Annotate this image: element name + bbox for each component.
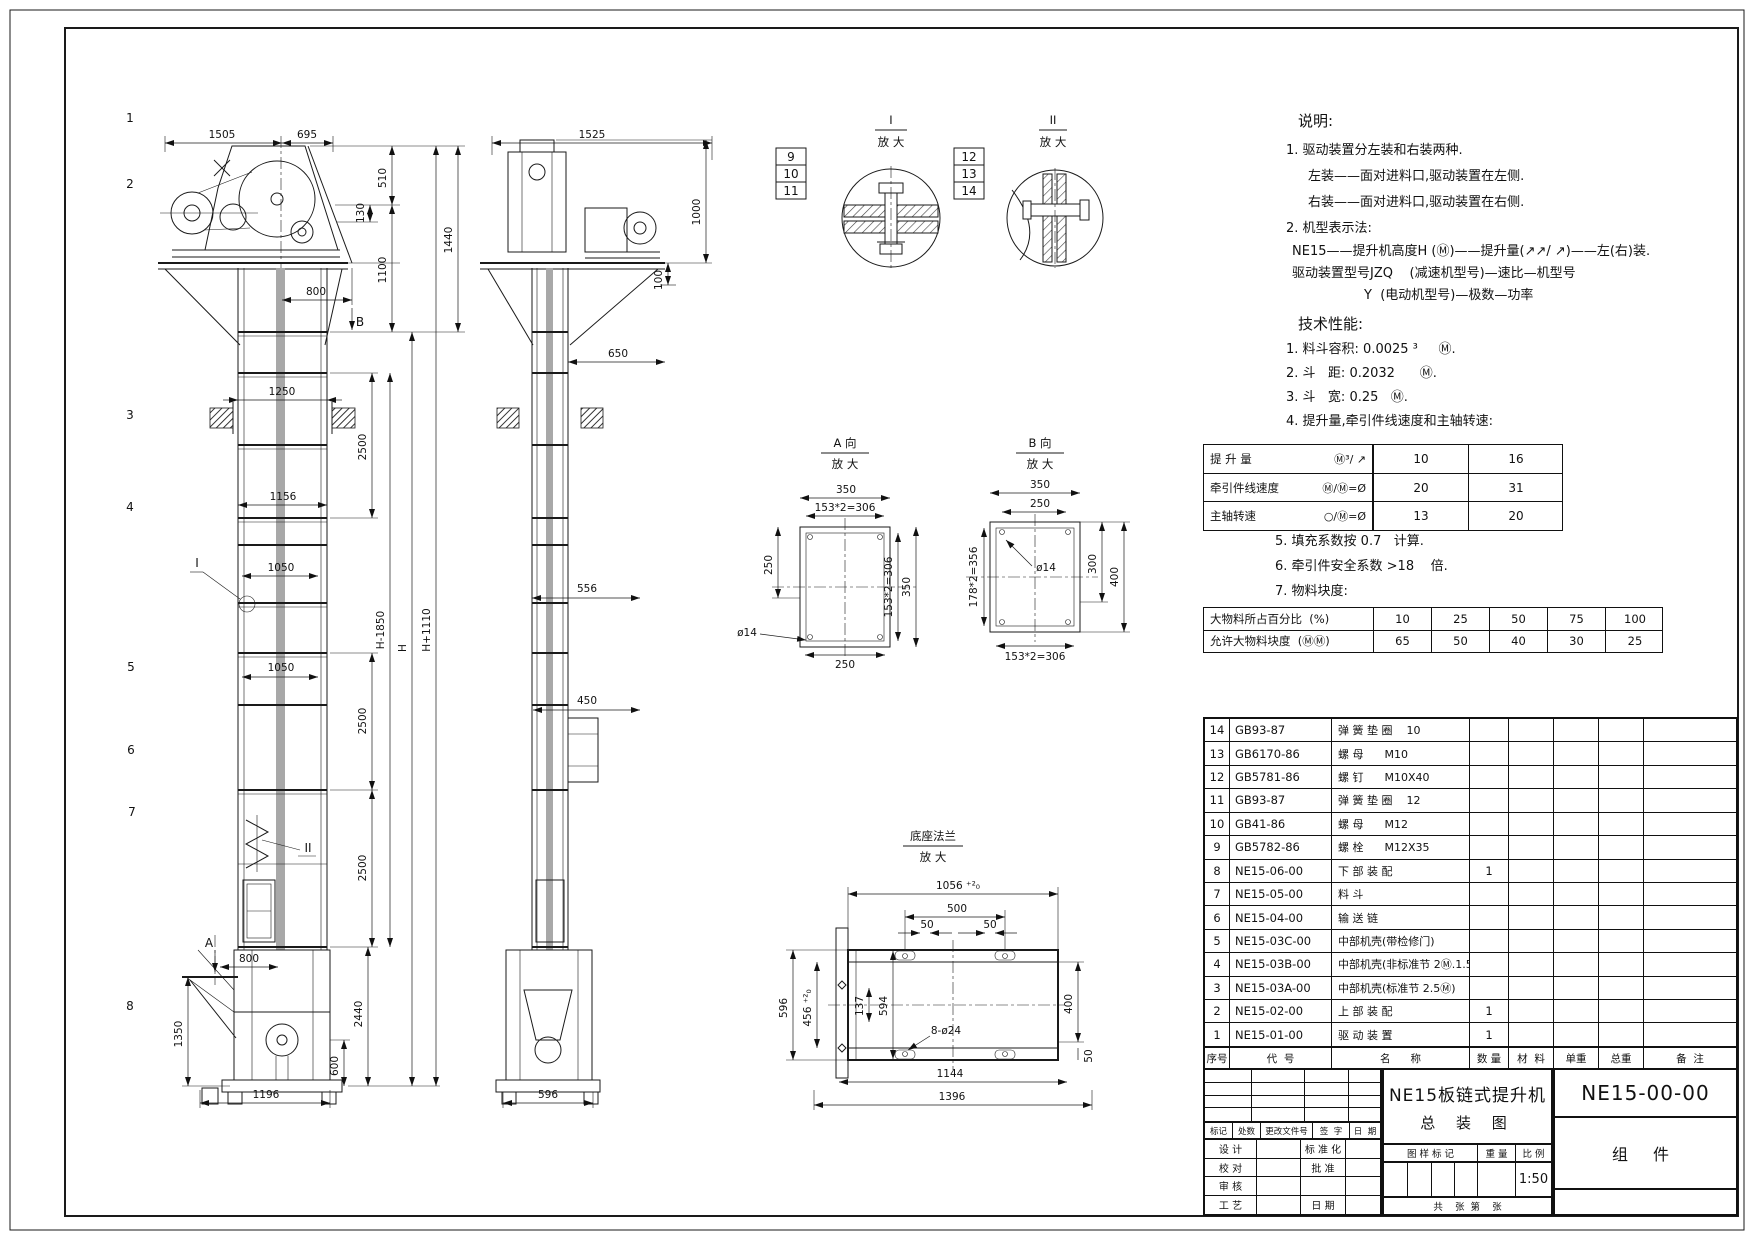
- part-material: [1509, 883, 1554, 905]
- drawing-title: NE15板链式提升机: [1389, 1081, 1546, 1106]
- part-remark: [1644, 1023, 1736, 1045]
- part-no: 3: [1205, 977, 1230, 999]
- part-total-weight: [1599, 906, 1644, 928]
- dim-2500-a: 2500: [357, 434, 369, 461]
- perf-value: 20: [1469, 502, 1563, 530]
- table-row: 9 GB5782-86 螺 栓 M12X35: [1205, 836, 1736, 859]
- detail-i-view: I 放 大 9 10 11: [776, 113, 940, 270]
- base-flange-view: 底座法兰 放 大 1056 ⁺²₀ 500 50 50 596 456 ⁺²₀: [778, 829, 1095, 1110]
- part-name: 中部机壳(非标准节 2Ⓜ.1.5Ⓜ): [1332, 953, 1470, 975]
- dim-650: 650: [608, 348, 628, 360]
- part-unit-weight: [1554, 953, 1599, 975]
- dim-f-500: 500: [947, 903, 967, 915]
- size-value: 100: [1606, 608, 1664, 630]
- label-change-doc: 更改文件号: [1261, 1123, 1313, 1138]
- tech-line: 7. 物料块度:: [1275, 580, 1348, 599]
- dim-f-1396: 1396: [939, 1091, 966, 1103]
- detail-i-subtitle: 放 大: [878, 135, 905, 149]
- callout-7: 7: [128, 805, 136, 819]
- callout-5: 5: [127, 660, 135, 674]
- callout-8: 8: [126, 999, 134, 1013]
- label-check: 校 对: [1205, 1159, 1257, 1178]
- size-label: 允许大物料块度 (ⓂⓂ): [1204, 631, 1374, 653]
- perf-symbol: ○/Ⓜ=Ø: [1324, 508, 1366, 524]
- part-code: NE15-03C-00: [1230, 930, 1332, 952]
- part-no: 14: [1205, 719, 1230, 741]
- size-value: 75: [1548, 608, 1606, 630]
- label-scale: 比 例: [1516, 1145, 1551, 1161]
- drawing-title-cell: NE15板链式提升机 总 装 图: [1382, 1068, 1553, 1145]
- part-total-weight: [1599, 1000, 1644, 1022]
- col-code: 代 号: [1230, 1048, 1332, 1068]
- part-name: 螺 栓 M12X35: [1332, 836, 1470, 858]
- dim-1100: 1100: [377, 257, 389, 284]
- col-name: 名 称: [1332, 1048, 1470, 1068]
- part-name: 驱 动 装 置: [1332, 1023, 1470, 1045]
- dim-450: 450: [577, 695, 597, 707]
- part-material: [1509, 1023, 1554, 1045]
- dim-f-596: 596: [778, 998, 790, 1018]
- dim-h-1850: H-1850: [375, 611, 387, 649]
- label-signature: 签 字: [1313, 1123, 1350, 1138]
- part-remark: [1644, 836, 1736, 858]
- dim-1196: 1196: [253, 1089, 280, 1101]
- dim-2500-b: 2500: [357, 708, 369, 735]
- flange-title: 底座法兰: [910, 829, 956, 843]
- size-value: 25: [1432, 608, 1490, 630]
- drawing-sheet: 1 2 3 4 5 6 7 8: [0, 0, 1754, 1240]
- tech-title: 技术性能:: [1298, 313, 1363, 334]
- part-remark: [1644, 977, 1736, 999]
- scale-value: 1:50: [1516, 1163, 1551, 1196]
- col-no: 序号: [1205, 1048, 1230, 1068]
- part-unit-weight: [1554, 789, 1599, 811]
- part-material: [1509, 813, 1554, 835]
- revision-grid: [1203, 1068, 1382, 1123]
- part-qty: [1470, 813, 1509, 835]
- table-row: 5 NE15-03C-00 中部机壳(带检修门): [1205, 930, 1736, 953]
- callout-13: 13: [961, 167, 976, 181]
- size-label: 大物料所占百分比 (%): [1204, 608, 1374, 630]
- part-unit-weight: [1554, 766, 1599, 788]
- view-a-subtitle: 放 大: [832, 457, 859, 471]
- part-no: 2: [1205, 1000, 1230, 1022]
- col-material: 材 料: [1509, 1048, 1554, 1068]
- part-name: 上 部 装 配: [1332, 1000, 1470, 1022]
- part-no: 5: [1205, 930, 1230, 952]
- dim-a-350-right: 350: [901, 577, 913, 597]
- col-remark: 备 注: [1644, 1048, 1736, 1068]
- part-unit-weight: [1554, 1023, 1599, 1045]
- table-row: 允许大物料块度 (ⓂⓂ) 65 50 40 30 25: [1204, 631, 1662, 653]
- dim-b-356-left: 178*2=356: [968, 546, 980, 607]
- dim-b-250: 250: [1030, 498, 1050, 510]
- callout-1: 1: [126, 111, 134, 125]
- dim-600: 600: [329, 1056, 341, 1076]
- size-value: 30: [1548, 631, 1606, 653]
- part-unit-weight: [1554, 813, 1599, 835]
- view-a: A 向 放 大 350 153*2=306 250 153*2=306 350 …: [737, 436, 918, 671]
- table-row: 6 NE15-04-00 输 送 链: [1205, 906, 1736, 929]
- dim-b-phi14: ø14: [1036, 562, 1056, 574]
- dim-h: H: [397, 644, 409, 652]
- callout-2: 2: [126, 177, 134, 191]
- part-qty: [1470, 789, 1509, 811]
- approval-block: 设 计 标 准 化 校 对 批 准 审 核 工 艺 日 期: [1203, 1138, 1382, 1216]
- part-material: [1509, 906, 1554, 928]
- part-material: [1509, 789, 1554, 811]
- part-qty: [1470, 977, 1509, 999]
- table-row: 12 GB5781-86 螺 钉 M10X40: [1205, 766, 1736, 789]
- part-remark: [1644, 813, 1736, 835]
- part-total-weight: [1599, 813, 1644, 835]
- table-row: 3 NE15-03A-00 中部机壳(标准节 2.5Ⓜ): [1205, 977, 1736, 1000]
- mark-weight-scale-row: 图 样 标 记 重 量 比 例: [1382, 1143, 1553, 1163]
- detail-ii-ref: II: [304, 841, 311, 855]
- part-code: GB5781-86: [1230, 766, 1332, 788]
- part-qty: 1: [1470, 860, 1509, 882]
- label-weight: 重 量: [1478, 1145, 1516, 1161]
- sheet-count: 共 张 第 张: [1384, 1198, 1551, 1214]
- table-row: 10 GB41-86 螺 母 M12: [1205, 813, 1736, 836]
- part-total-weight: [1599, 1023, 1644, 1045]
- label-review: 审 核: [1205, 1177, 1257, 1196]
- part-qty: [1470, 953, 1509, 975]
- dim-a-250-left: 250: [763, 555, 775, 575]
- part-remark: [1644, 930, 1736, 952]
- part-remark: [1644, 766, 1736, 788]
- part-name: 螺 母 M12: [1332, 813, 1470, 835]
- dim-2500-c: 2500: [357, 855, 369, 882]
- part-qty: [1470, 742, 1509, 764]
- dim-f-50-left: 50: [920, 919, 933, 931]
- label-date2: 日 期: [1301, 1196, 1346, 1215]
- dim-b-306-bottom: 153*2=306: [1005, 651, 1066, 663]
- part-unit-weight: [1554, 883, 1599, 905]
- blank-cell: [1553, 1188, 1738, 1216]
- tech-line: 6. 牵引件安全系数 >18 倍.: [1275, 555, 1448, 574]
- part-material: [1509, 930, 1554, 952]
- table-row: 牵引件线速度Ⓜ/Ⓜ=Ø 20 31: [1204, 474, 1562, 503]
- callout-3: 3: [126, 408, 134, 422]
- dim-1440: 1440: [443, 227, 455, 254]
- table-row: 主轴转速○/Ⓜ=Ø 13 20: [1204, 502, 1562, 530]
- part-qty: [1470, 883, 1509, 905]
- dim-h-1110: H+1110: [421, 608, 433, 651]
- component-cell: 组 件: [1553, 1116, 1738, 1190]
- part-qty: 1: [1470, 1023, 1509, 1045]
- table-row: 提 升 量Ⓜ³/ ↗ 10 16: [1204, 445, 1562, 474]
- dim-f-50: 50: [1083, 1049, 1095, 1062]
- part-total-weight: [1599, 836, 1644, 858]
- note-line: Y (电动机型号)—极数—功率: [1364, 284, 1533, 303]
- part-material: [1509, 719, 1554, 741]
- label-approve: 批 准: [1301, 1159, 1346, 1178]
- drawing-number-cell: NE15-00-00: [1553, 1068, 1738, 1118]
- note-line: 右装——面对进料口,驱动装置在右侧.: [1308, 191, 1524, 210]
- perf-label: 主轴转速: [1210, 508, 1256, 524]
- performance-table: 提 升 量Ⓜ³/ ↗ 10 16 牵引件线速度Ⓜ/Ⓜ=Ø 20 31 主轴转速○…: [1203, 444, 1563, 531]
- detail-i-title: I: [889, 113, 892, 127]
- dim-800-bottom: 800: [239, 953, 259, 965]
- part-remark: [1644, 860, 1736, 882]
- part-total-weight: [1599, 766, 1644, 788]
- part-code: GB93-87: [1230, 789, 1332, 811]
- dim-1050-b: 1050: [268, 662, 295, 674]
- part-code: GB5782-86: [1230, 836, 1332, 858]
- note-line: NE15——提升机高度H (Ⓜ)——提升量(↗↗/ ↗)——左(右)装.: [1292, 240, 1650, 259]
- perf-label: 牵引件线速度: [1210, 480, 1279, 496]
- dim-f-1056: 1056 ⁺²₀: [936, 880, 980, 892]
- part-unit-weight: [1554, 836, 1599, 858]
- label-date: 日 期: [1350, 1123, 1380, 1138]
- part-material: [1509, 836, 1554, 858]
- label-drawing-mark: 图 样 标 记: [1384, 1145, 1478, 1161]
- callout-11: 11: [783, 184, 798, 198]
- table-row: 11 GB93-87 弹 簧 垫 圈 12: [1205, 789, 1736, 812]
- dim-695: 695: [297, 129, 317, 141]
- label-standardization: 标 准 化: [1301, 1140, 1346, 1159]
- dim-f-50-right: 50: [983, 919, 996, 931]
- dim-1350: 1350: [173, 1021, 185, 1048]
- note-line: 驱动装置型号JZQ (减速机型号)—速比—机型号: [1292, 262, 1576, 281]
- size-value: 50: [1432, 631, 1490, 653]
- table-row: 2 NE15-02-00 上 部 装 配 1: [1205, 1000, 1736, 1023]
- part-no: 6: [1205, 906, 1230, 928]
- part-no: 8: [1205, 860, 1230, 882]
- table-row: 大物料所占百分比 (%) 10 25 50 75 100: [1204, 608, 1662, 631]
- side-view: 1525 1000 100 650 556 450: [480, 129, 712, 1108]
- part-code: NE15-03A-00: [1230, 977, 1332, 999]
- label-design: 设 计: [1205, 1140, 1257, 1159]
- perf-value: 10: [1374, 445, 1469, 473]
- part-qty: [1470, 836, 1509, 858]
- part-name: 弹 簧 垫 圈 10: [1332, 719, 1470, 741]
- table-row: 7 NE15-05-00 料 斗: [1205, 883, 1736, 906]
- part-total-weight: [1599, 742, 1644, 764]
- note-line: 左装——面对进料口,驱动装置在左侧.: [1308, 165, 1524, 184]
- part-name: 输 送 链: [1332, 906, 1470, 928]
- dim-556: 556: [577, 583, 597, 595]
- part-no: 7: [1205, 883, 1230, 905]
- part-name: 弹 簧 垫 圈 12: [1332, 789, 1470, 811]
- part-name: 中部机壳(带检修门): [1332, 930, 1470, 952]
- notes-title: 说明:: [1298, 110, 1333, 131]
- part-unit-weight: [1554, 742, 1599, 764]
- callout-6: 6: [127, 743, 135, 757]
- part-unit-weight: [1554, 977, 1599, 999]
- detail-ii-subtitle: 放 大: [1040, 135, 1067, 149]
- dim-596: 596: [538, 1089, 558, 1101]
- part-no: 11: [1205, 789, 1230, 811]
- size-value: 25: [1606, 631, 1664, 653]
- detail-i-ref: I: [195, 556, 199, 570]
- dim-a-350-top: 350: [836, 484, 856, 496]
- section-a-label: A: [205, 936, 214, 950]
- part-unit-weight: [1554, 906, 1599, 928]
- part-code: GB93-87: [1230, 719, 1332, 741]
- part-no: 9: [1205, 836, 1230, 858]
- detail-ii-title: II: [1050, 113, 1057, 127]
- part-qty: [1470, 766, 1509, 788]
- col-qty: 数 量: [1470, 1048, 1509, 1068]
- part-material: [1509, 953, 1554, 975]
- dim-1250: 1250: [269, 386, 296, 398]
- part-name: 下 部 装 配: [1332, 860, 1470, 882]
- part-no: 13: [1205, 742, 1230, 764]
- part-code: NE15-01-00: [1230, 1023, 1332, 1045]
- tech-line: 3. 斗 宽: 0.25 Ⓜ.: [1286, 386, 1408, 405]
- part-material: [1509, 766, 1554, 788]
- dim-a-306-right: 153*2=306: [883, 556, 895, 617]
- dim-f-594: 594: [878, 996, 890, 1016]
- dim-1000: 1000: [691, 199, 703, 226]
- part-remark: [1644, 953, 1736, 975]
- part-total-weight: [1599, 883, 1644, 905]
- callout-14: 14: [961, 184, 976, 198]
- part-material: [1509, 1000, 1554, 1022]
- note-line: 2. 机型表示法:: [1286, 217, 1372, 236]
- view-b: B 向 放 大 350 250 178*2=356 ø14 300 400 15…: [966, 436, 1130, 663]
- parts-list-header: 序号 代 号 名 称 数 量 材 料 单重 总重 备 注: [1203, 1046, 1738, 1070]
- view-b-title: B 向: [1028, 436, 1051, 450]
- callout-9: 9: [787, 150, 795, 164]
- part-code: GB41-86: [1230, 813, 1332, 835]
- part-total-weight: [1599, 719, 1644, 741]
- dim-f-456: 456 ⁺²₀: [802, 989, 814, 1026]
- part-code: NE15-04-00: [1230, 906, 1332, 928]
- part-code: NE15-03B-00: [1230, 953, 1332, 975]
- table-row: 8 NE15-06-00 下 部 装 配 1: [1205, 860, 1736, 883]
- part-qty: [1470, 719, 1509, 741]
- size-value: 40: [1490, 631, 1548, 653]
- dim-f-8-24: 8-ø24: [931, 1025, 962, 1037]
- dim-800-top: 800: [306, 286, 326, 298]
- part-code: NE15-06-00: [1230, 860, 1332, 882]
- dim-b-350: 350: [1030, 479, 1050, 491]
- perf-value: 31: [1469, 474, 1563, 502]
- table-row: 1 NE15-01-00 驱 动 装 置 1: [1205, 1023, 1736, 1045]
- dim-b-300: 300: [1087, 554, 1099, 574]
- front-view: 1 2 3 4 5 6 7 8: [126, 111, 465, 1108]
- part-name: 螺 钉 M10X40: [1332, 766, 1470, 788]
- part-no: 4: [1205, 953, 1230, 975]
- callout-12: 12: [961, 150, 976, 164]
- dim-1050-a: 1050: [268, 562, 295, 574]
- part-unit-weight: [1554, 860, 1599, 882]
- part-remark: [1644, 1000, 1736, 1022]
- part-material: [1509, 742, 1554, 764]
- size-value: 10: [1374, 608, 1432, 630]
- size-value: 65: [1374, 631, 1432, 653]
- part-total-weight: [1599, 789, 1644, 811]
- part-remark: [1644, 719, 1736, 741]
- part-remark: [1644, 742, 1736, 764]
- dim-a-306-top: 153*2=306: [815, 502, 876, 514]
- section-b-label: B: [356, 315, 364, 329]
- sheet-count-row: 共 张 第 张: [1382, 1196, 1553, 1216]
- table-row: 13 GB6170-86 螺 母 M10: [1205, 742, 1736, 765]
- part-unit-weight: [1554, 1000, 1599, 1022]
- part-code: NE15-02-00: [1230, 1000, 1332, 1022]
- part-no: 10: [1205, 813, 1230, 835]
- table-row: 4 NE15-03B-00 中部机壳(非标准节 2Ⓜ.1.5Ⓜ): [1205, 953, 1736, 976]
- tech-line: 4. 提升量,牵引件线速度和主轴转速:: [1286, 410, 1493, 429]
- part-total-weight: [1599, 930, 1644, 952]
- tech-line: 1. 料斗容积: 0.0025 ³ Ⓜ.: [1286, 338, 1456, 357]
- part-qty: 1: [1470, 1000, 1509, 1022]
- dim-2440: 2440: [353, 1001, 365, 1028]
- dim-f-1144: 1144: [937, 1068, 964, 1080]
- part-qty: [1470, 906, 1509, 928]
- label-process: 工 艺: [1205, 1196, 1257, 1215]
- dim-a-phi14: ø14: [737, 627, 757, 639]
- mark-boxes-row: 1:50: [1382, 1161, 1553, 1198]
- part-no: 1: [1205, 1023, 1230, 1045]
- part-remark: [1644, 906, 1736, 928]
- part-total-weight: [1599, 860, 1644, 882]
- parts-list: 14 GB93-87 弹 簧 垫 圈 10 13 GB6170-86 螺 母 M…: [1203, 717, 1738, 1048]
- col-unit-weight: 单重: [1554, 1048, 1599, 1068]
- perf-symbol: Ⓜ/Ⓜ=Ø: [1322, 480, 1366, 496]
- dim-1156: 1156: [270, 491, 297, 503]
- component-label: 组 件: [1555, 1118, 1736, 1188]
- lump-size-table: 大物料所占百分比 (%) 10 25 50 75 100 允许大物料块度 (ⓂⓂ…: [1203, 607, 1663, 653]
- table-row: 14 GB93-87 弹 簧 垫 圈 10: [1205, 719, 1736, 742]
- dim-1525: 1525: [579, 129, 606, 141]
- perf-value: 16: [1469, 445, 1563, 473]
- size-value: 50: [1490, 608, 1548, 630]
- drawing-number: NE15-00-00: [1555, 1070, 1736, 1116]
- part-name: 料 斗: [1332, 883, 1470, 905]
- perf-value: 20: [1374, 474, 1469, 502]
- part-remark: [1644, 883, 1736, 905]
- callout-4: 4: [126, 500, 134, 514]
- callout-10: 10: [783, 167, 798, 181]
- part-material: [1509, 977, 1554, 999]
- part-name: 中部机壳(标准节 2.5Ⓜ): [1332, 977, 1470, 999]
- part-code: GB6170-86: [1230, 742, 1332, 764]
- part-total-weight: [1599, 953, 1644, 975]
- perf-label: 提 升 量: [1210, 451, 1252, 467]
- dim-a-250-bottom: 250: [835, 659, 855, 671]
- drawing-subtitle: 总 装 图: [1420, 1112, 1515, 1133]
- part-unit-weight: [1554, 719, 1599, 741]
- dim-130: 130: [355, 203, 367, 223]
- part-unit-weight: [1554, 930, 1599, 952]
- dim-f-137: 137: [854, 996, 866, 1016]
- dim-1505: 1505: [209, 129, 236, 141]
- dim-510: 510: [377, 168, 389, 188]
- flange-subtitle: 放 大: [920, 850, 947, 864]
- col-total-weight: 总重: [1599, 1048, 1644, 1068]
- note-line: 1. 驱动装置分左装和右装两种.: [1286, 139, 1463, 158]
- view-b-subtitle: 放 大: [1027, 457, 1054, 471]
- perf-value: 13: [1374, 502, 1469, 530]
- dim-b-400: 400: [1109, 567, 1121, 587]
- label-count: 处数: [1233, 1123, 1261, 1138]
- tech-line: 5. 填充系数按 0.7 计算.: [1275, 530, 1424, 549]
- perf-symbol: Ⓜ³/ ↗: [1334, 451, 1366, 467]
- tech-line: 2. 斗 距: 0.2032 Ⓜ.: [1286, 362, 1437, 381]
- label-mark: 标记: [1205, 1123, 1233, 1138]
- dim-100: 100: [653, 270, 665, 290]
- dim-f-400: 400: [1063, 994, 1075, 1014]
- detail-ii-view: II 放 大 12 13 14: [954, 113, 1103, 268]
- part-code: NE15-05-00: [1230, 883, 1332, 905]
- view-a-title: A 向: [833, 436, 856, 450]
- part-total-weight: [1599, 977, 1644, 999]
